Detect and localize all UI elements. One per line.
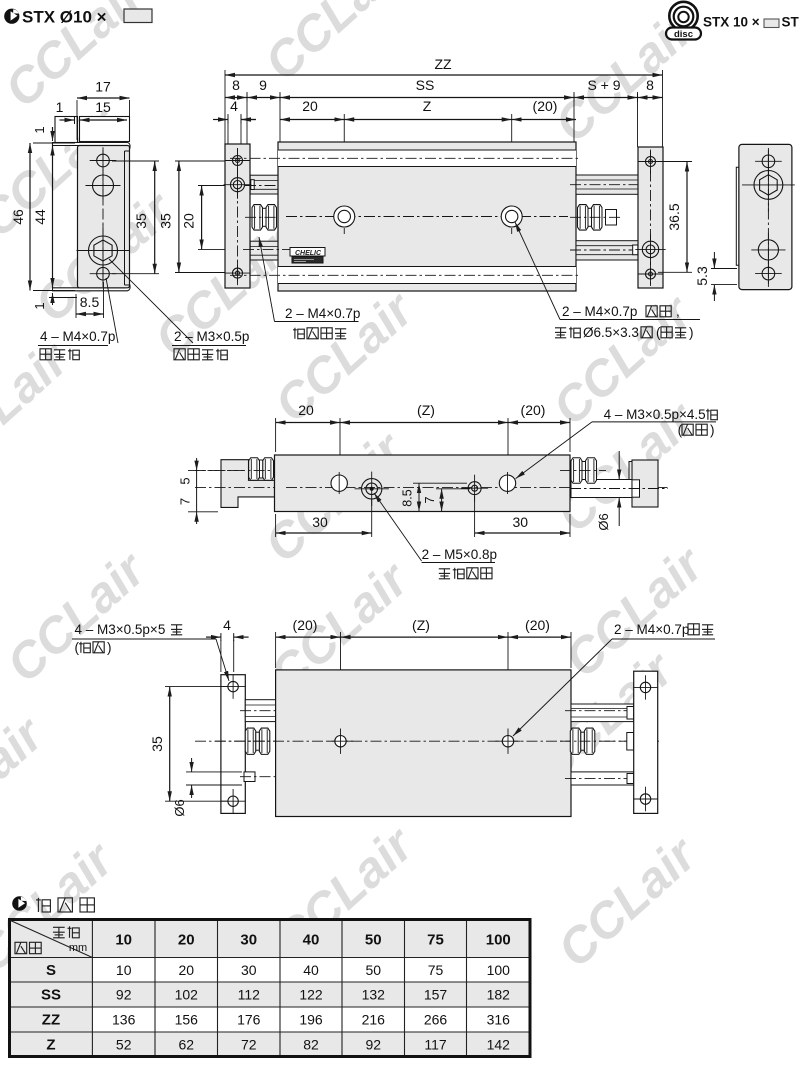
svg-text:35: 35: [149, 736, 165, 752]
svg-text:1: 1: [56, 99, 64, 115]
svg-text:): ): [710, 423, 715, 438]
svg-text:10: 10: [116, 962, 132, 978]
svg-text:122: 122: [299, 987, 323, 1003]
svg-text:): ): [107, 640, 112, 655]
svg-text:Z: Z: [423, 98, 432, 114]
svg-text:,: ,: [676, 304, 680, 319]
svg-text:100: 100: [486, 932, 511, 949]
svg-text:62: 62: [178, 1036, 194, 1052]
svg-text:20: 20: [178, 962, 194, 978]
svg-text:(20): (20): [293, 617, 318, 633]
svg-text:157: 157: [424, 987, 448, 1003]
svg-text:8: 8: [646, 77, 654, 93]
svg-text:156: 156: [175, 1012, 199, 1028]
svg-text:132: 132: [362, 987, 386, 1003]
svg-text:4: 4: [223, 617, 231, 633]
svg-text:102: 102: [175, 987, 199, 1003]
svg-text:(20): (20): [533, 98, 558, 114]
svg-text:136: 136: [112, 1012, 136, 1028]
svg-text:82: 82: [303, 1036, 319, 1052]
svg-text:36.5: 36.5: [666, 203, 682, 230]
svg-text:5.3: 5.3: [694, 266, 710, 286]
svg-text:35: 35: [133, 213, 149, 229]
svg-text:10: 10: [115, 932, 132, 949]
svg-text:4 – M4×0.7p: 4 – M4×0.7p: [40, 329, 115, 344]
svg-text:S + 9: S + 9: [587, 77, 620, 93]
svg-text:CHELIC: CHELIC: [295, 250, 322, 257]
svg-text:ZZ: ZZ: [434, 56, 452, 72]
svg-text:196: 196: [299, 1012, 323, 1028]
svg-text:STX Ø10 ×: STX Ø10 ×: [22, 8, 107, 27]
svg-text:(20): (20): [521, 402, 546, 418]
svg-text:30: 30: [312, 514, 328, 530]
svg-text:S: S: [46, 962, 56, 979]
svg-text:52: 52: [116, 1036, 132, 1052]
svg-text:100: 100: [487, 962, 511, 978]
svg-text:): ): [689, 325, 694, 340]
svg-text:(: (: [656, 325, 661, 340]
svg-text:266: 266: [424, 1012, 448, 1028]
svg-text:2 – M3×0.5p: 2 – M3×0.5p: [174, 329, 249, 344]
svg-text:2 – M4×0.7p: 2 – M4×0.7p: [285, 306, 360, 321]
svg-text:2 – M5×0.8p: 2 – M5×0.8p: [422, 547, 497, 562]
svg-text:4: 4: [230, 98, 238, 114]
svg-text:176: 176: [237, 1012, 261, 1028]
svg-text:7: 7: [178, 498, 193, 505]
svg-text:182: 182: [487, 987, 511, 1003]
svg-text:117: 117: [424, 1036, 447, 1052]
svg-text:216: 216: [362, 1012, 386, 1028]
svg-text:15: 15: [95, 99, 111, 115]
svg-text:20: 20: [302, 98, 318, 114]
svg-text:ZZ: ZZ: [42, 1012, 60, 1029]
svg-text:75: 75: [428, 962, 444, 978]
svg-text:50: 50: [365, 962, 381, 978]
svg-text:1: 1: [32, 126, 47, 133]
svg-text:92: 92: [116, 987, 132, 1003]
svg-text:Ø6.5×3.3: Ø6.5×3.3: [583, 325, 639, 340]
svg-text:8: 8: [232, 77, 240, 93]
svg-text:Z: Z: [46, 1036, 55, 1053]
svg-text:72: 72: [241, 1036, 257, 1052]
svg-text:35: 35: [158, 213, 174, 229]
svg-text:SS: SS: [41, 987, 61, 1004]
svg-text:(20): (20): [525, 617, 550, 633]
svg-text:17: 17: [95, 79, 111, 95]
svg-text:112: 112: [238, 987, 261, 1003]
svg-text:(Z): (Z): [412, 617, 430, 633]
svg-text:46: 46: [10, 209, 26, 225]
svg-text:(Z): (Z): [417, 402, 435, 418]
svg-text:316: 316: [487, 1012, 511, 1028]
svg-text:30: 30: [240, 932, 257, 949]
svg-text:50: 50: [365, 932, 382, 949]
svg-text:4 – M3×0.5p×4.5: 4 – M3×0.5p×4.5: [604, 407, 706, 422]
svg-text:Ø6: Ø6: [172, 799, 187, 816]
svg-text:20: 20: [298, 402, 314, 418]
svg-text:30: 30: [513, 514, 529, 530]
svg-text:mm: mm: [69, 942, 87, 954]
svg-text:2 – M4×0.7p: 2 – M4×0.7p: [614, 622, 689, 637]
svg-text:9: 9: [259, 77, 267, 93]
svg-text:Ø6: Ø6: [596, 513, 611, 530]
svg-text:75: 75: [427, 932, 444, 949]
svg-text:disc: disc: [674, 29, 693, 40]
svg-text:(: (: [75, 640, 80, 655]
svg-text:2 – M4×0.7p: 2 – M4×0.7p: [562, 304, 637, 319]
svg-text:STX 10 ×: STX 10 ×: [703, 15, 760, 30]
svg-text:40: 40: [303, 962, 319, 978]
svg-text:8.5: 8.5: [80, 294, 100, 310]
svg-text:4 – M3×0.5p×5: 4 – M3×0.5p×5: [75, 622, 166, 637]
svg-text:1: 1: [32, 302, 47, 309]
svg-text:20: 20: [178, 932, 195, 949]
svg-text:20: 20: [181, 213, 197, 229]
svg-text:44: 44: [32, 209, 48, 225]
svg-text:92: 92: [365, 1036, 381, 1052]
svg-text:SS: SS: [416, 77, 435, 93]
svg-text:30: 30: [241, 962, 257, 978]
svg-text:ST: ST: [782, 15, 800, 30]
svg-text:142: 142: [487, 1036, 511, 1052]
svg-text:40: 40: [303, 932, 320, 949]
svg-text:8.5: 8.5: [401, 489, 415, 506]
svg-text:7: 7: [423, 496, 437, 503]
svg-text:5: 5: [178, 477, 193, 484]
